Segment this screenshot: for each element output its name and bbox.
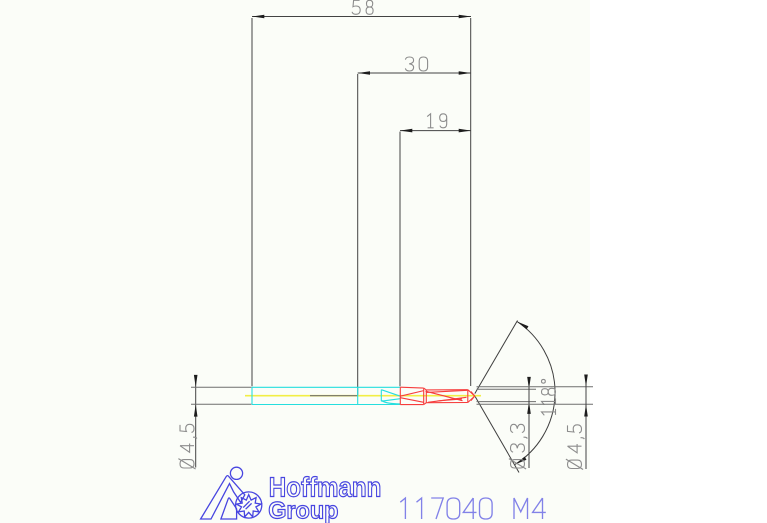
svg-text:Group: Group [268, 498, 338, 523]
